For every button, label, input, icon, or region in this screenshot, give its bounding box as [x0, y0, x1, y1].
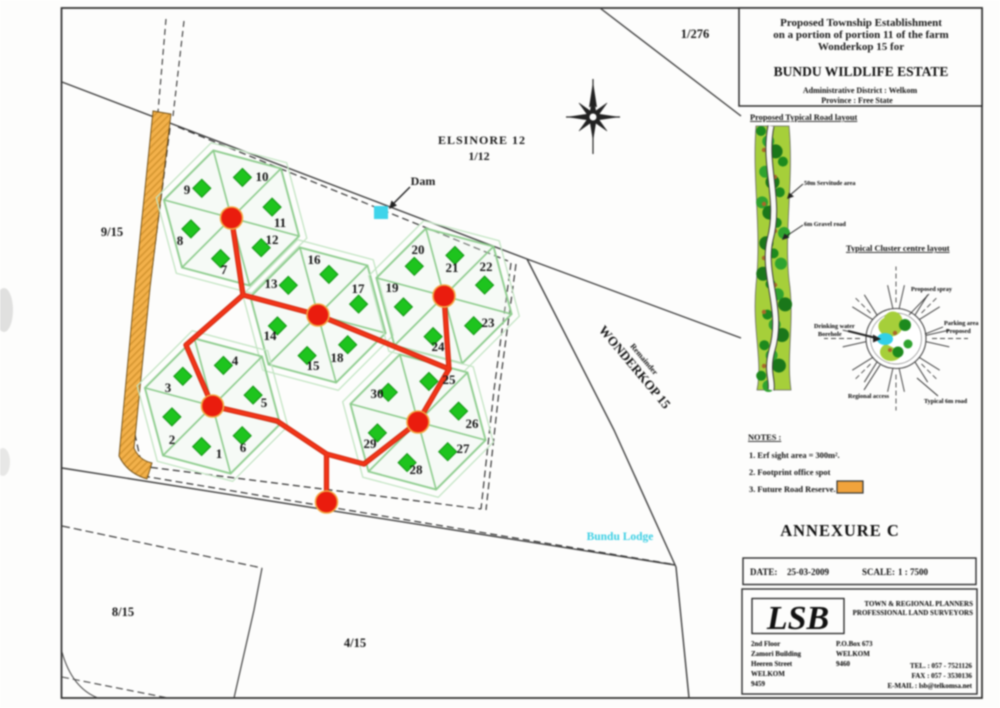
- svg-text:on a portion of portion 11 of: on a portion of portion 11 of the farm: [773, 29, 948, 41]
- svg-text:4: 4: [232, 353, 239, 368]
- svg-text:Borehole: Borehole: [818, 331, 842, 338]
- svg-text:Typical Cluster centre layout: Typical Cluster centre layout: [846, 244, 950, 253]
- svg-text:6: 6: [240, 440, 247, 455]
- svg-text:7: 7: [221, 262, 228, 277]
- svg-text:FAX : 057 - 3530136: FAX : 057 - 3530136: [911, 672, 972, 680]
- svg-text:Proposed spray: Proposed spray: [911, 286, 953, 293]
- svg-text:9460: 9460: [836, 660, 851, 668]
- svg-text:BUNDU WILDLIFE ESTATE: BUNDU WILDLIFE ESTATE: [774, 64, 949, 79]
- svg-text:25: 25: [443, 372, 457, 387]
- svg-text:6m Gravel road: 6m Gravel road: [804, 221, 846, 228]
- svg-text:1/276: 1/276: [681, 27, 709, 41]
- svg-text:12: 12: [266, 232, 279, 247]
- svg-text:SCALE:: SCALE:: [862, 567, 895, 577]
- svg-text:15: 15: [307, 358, 321, 373]
- svg-text:22: 22: [480, 259, 493, 274]
- svg-text:Regional access: Regional access: [848, 393, 890, 400]
- svg-text:Proposed Typical Road layout: Proposed Typical Road layout: [750, 113, 857, 122]
- svg-text:2: 2: [169, 432, 176, 447]
- svg-text:10: 10: [256, 169, 269, 184]
- svg-text:24: 24: [432, 339, 446, 354]
- svg-text:Administrative District : Welk: Administrative District : Welkom: [803, 86, 918, 95]
- svg-text:LSB: LSB: [766, 600, 829, 637]
- svg-text:E-MAIL : lsb@telkomsa.net: E-MAIL : lsb@telkomsa.net: [888, 682, 973, 690]
- svg-text:1. Erf sight area = 300m².: 1. Erf sight area = 300m².: [749, 451, 840, 460]
- svg-text:5: 5: [261, 395, 268, 410]
- svg-text:19: 19: [386, 280, 400, 295]
- svg-text:Proposed Township Establishmen: Proposed Township Establishment: [780, 17, 942, 29]
- svg-text:Bundu Lodge: Bundu Lodge: [587, 531, 654, 543]
- svg-text:9: 9: [184, 182, 191, 197]
- svg-text:ELSINORE 12: ELSINORE 12: [438, 133, 526, 147]
- svg-text:20: 20: [412, 242, 425, 257]
- svg-text:1: 1: [216, 446, 223, 461]
- svg-text:DATE:: DATE:: [750, 567, 777, 577]
- svg-text:Dam: Dam: [411, 174, 436, 188]
- svg-text:Proposed: Proposed: [946, 328, 971, 335]
- svg-text:P.O.Box 673: P.O.Box 673: [836, 640, 873, 648]
- svg-text:3. Future Road Reserve.: 3. Future Road Reserve.: [749, 485, 836, 494]
- svg-text:PROFESSIONAL LAND SURVEYORS: PROFESSIONAL LAND SURVEYORS: [853, 609, 973, 617]
- svg-text:Province : Free State: Province : Free State: [821, 96, 893, 105]
- svg-text:2nd Floor: 2nd Floor: [751, 640, 780, 648]
- svg-text:8: 8: [177, 233, 184, 248]
- svg-text:Typical 6m road: Typical 6m road: [924, 398, 968, 405]
- svg-text:29: 29: [364, 436, 378, 451]
- svg-text:3: 3: [165, 380, 172, 395]
- svg-text:8/15: 8/15: [112, 605, 134, 619]
- svg-text:9/15: 9/15: [101, 225, 123, 239]
- svg-text:Parking area: Parking area: [944, 320, 978, 327]
- svg-text:28: 28: [410, 462, 424, 477]
- svg-text:TOWN & REGIONAL PLANNERS: TOWN & REGIONAL PLANNERS: [864, 600, 973, 608]
- svg-text:NOTES :: NOTES :: [748, 433, 781, 442]
- svg-text:25-03-2009: 25-03-2009: [787, 567, 829, 577]
- svg-text:26: 26: [466, 416, 480, 431]
- svg-text:Zamori Building: Zamori Building: [751, 650, 801, 658]
- svg-text:16: 16: [308, 252, 322, 267]
- svg-text:21: 21: [446, 260, 459, 275]
- svg-text:WELKOM: WELKOM: [751, 670, 785, 678]
- svg-text:Heeren Street: Heeren Street: [751, 660, 793, 668]
- svg-text:11: 11: [274, 215, 286, 230]
- svg-text:Wonderkop 15 for: Wonderkop 15 for: [818, 41, 904, 53]
- svg-text:1 : 7500: 1 : 7500: [898, 567, 928, 577]
- svg-text:ANNEXURE C: ANNEXURE C: [780, 521, 900, 540]
- svg-text:14: 14: [264, 328, 278, 343]
- svg-text:Drinking water: Drinking water: [814, 323, 855, 330]
- svg-text:17: 17: [352, 281, 366, 296]
- svg-text:WELKOM: WELKOM: [836, 650, 870, 658]
- svg-text:9459: 9459: [751, 680, 766, 688]
- svg-text:27: 27: [457, 441, 471, 456]
- svg-text:50m Servitude area: 50m Servitude area: [804, 180, 855, 187]
- svg-text:4/15: 4/15: [344, 636, 366, 650]
- svg-text:TEL. : 057 - 7521126: TEL. : 057 - 7521126: [910, 662, 973, 670]
- svg-text:18: 18: [331, 350, 345, 365]
- svg-text:2. Footprint office spot: 2. Footprint office spot: [749, 468, 831, 477]
- svg-text:23: 23: [482, 315, 496, 330]
- svg-text:13: 13: [265, 276, 279, 291]
- svg-text:30: 30: [371, 386, 384, 401]
- svg-text:1/12: 1/12: [468, 149, 489, 163]
